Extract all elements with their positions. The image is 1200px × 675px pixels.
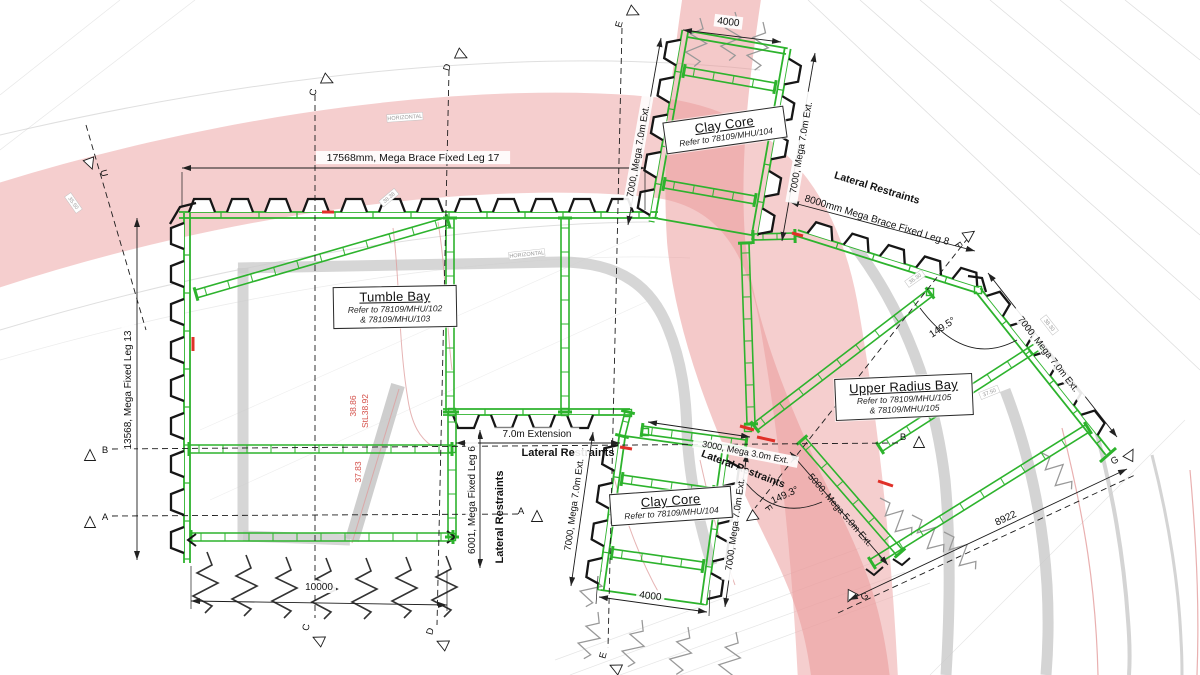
rung	[987, 374, 991, 381]
rung	[614, 477, 620, 478]
castellation	[569, 199, 595, 212]
ride-outline	[612, 470, 660, 595]
bay-label-upper-radius-bay: Upper Radius Bay Refer to 78109/MHU/105 …	[834, 373, 974, 421]
rung	[1000, 478, 1004, 485]
marker-letter: A	[102, 512, 109, 523]
dim-4000-label: 4000	[639, 590, 663, 604]
marker-triangle	[321, 73, 336, 88]
lateral-restraints-label: Lateral Restraints	[522, 447, 615, 459]
survey-line	[0, 0, 195, 150]
break-symbol	[667, 625, 697, 675]
marker-triangle	[627, 5, 642, 20]
marker-triangle	[311, 632, 326, 647]
rung	[651, 427, 652, 435]
section-marker-A: A	[518, 506, 543, 522]
level-38-92: StL38.92	[360, 394, 370, 428]
rung	[909, 266, 911, 272]
dim-6001-label: 6001, Mega Fixed Leg 6	[466, 435, 479, 564]
rung	[320, 254, 322, 262]
marker-triangle	[85, 517, 96, 528]
castellation	[493, 199, 519, 212]
member	[195, 217, 447, 290]
level-38-86: 38.86	[348, 395, 358, 417]
rung	[412, 227, 414, 235]
castellation	[531, 199, 557, 212]
bay-ref-2: & 78109/MHU/103	[339, 313, 451, 325]
break-symbol	[352, 558, 377, 619]
section-marker-B: B	[85, 445, 109, 461]
tag-text: 37.50	[982, 388, 997, 399]
dim-13568-label: 13568, Mega Fixed Leg 13	[123, 330, 134, 449]
break-symbol	[272, 557, 297, 618]
angle-149-5-label: 149.5°	[927, 315, 957, 340]
break-symbol	[432, 556, 457, 617]
castellation	[171, 261, 184, 287]
marker-letter: C	[307, 87, 319, 97]
break-symbol	[193, 552, 218, 613]
rung	[661, 556, 662, 564]
rung	[752, 79, 753, 87]
section-line	[112, 514, 520, 516]
survey-line	[1060, 0, 1200, 115]
bay-label-tumble-bay: Tumble Bay Refer to 78109/MHU/102 & 7810…	[333, 285, 458, 330]
castellation	[567, 415, 593, 428]
castellation	[987, 292, 1010, 317]
dimension-line	[191, 601, 447, 605]
rung	[631, 476, 632, 484]
rung	[389, 234, 391, 242]
castellation	[171, 413, 184, 439]
rung	[621, 550, 622, 558]
marker-letter: D	[424, 626, 436, 636]
marker-letter: E	[597, 651, 609, 660]
marker-triangle	[608, 660, 623, 675]
marker-letter: A	[518, 506, 525, 517]
marker-letter: E	[613, 20, 625, 29]
end-plate	[702, 559, 704, 573]
rung	[603, 552, 609, 553]
break-symbol	[619, 617, 651, 669]
rung	[228, 281, 230, 289]
section-marker-C: C	[300, 622, 325, 646]
survey-line	[930, 420, 1185, 675]
section-marker-E: E	[613, 5, 641, 29]
member	[874, 431, 1090, 566]
survey-line	[920, 0, 1200, 235]
rung	[1073, 410, 1078, 414]
section-marker-E: E	[597, 651, 622, 675]
marker-letter: G	[1109, 454, 1121, 467]
end-plate	[621, 410, 635, 413]
dim-7000-label: 7000, Mega 7.0m Ext.	[560, 448, 588, 561]
marker-letter: B	[102, 445, 108, 456]
marker-triangle	[85, 450, 96, 461]
tag-text: 36.30	[908, 273, 923, 286]
survey-line	[860, 0, 1200, 300]
member	[611, 557, 702, 570]
marker-letter: B	[900, 432, 906, 443]
level-38-86: 38.86	[348, 395, 358, 417]
castellation	[171, 489, 184, 515]
castellation	[784, 59, 800, 85]
break-symbol	[392, 557, 417, 618]
marker-letter: B	[102, 445, 108, 456]
end-castellation	[893, 558, 910, 565]
extension-70m-label: 7.0m Extension	[495, 428, 579, 441]
survey-line	[0, 0, 120, 95]
red-tick	[620, 447, 632, 449]
rung	[960, 503, 964, 510]
marker-triangle	[532, 511, 543, 522]
lateral-restraints-label: Lateral Restraints	[833, 169, 921, 206]
end-plate	[621, 472, 623, 486]
marker-letter: C	[307, 87, 319, 97]
marker-letter: E	[613, 20, 625, 29]
rung	[945, 277, 947, 283]
site-plan-svg: UCDEBAABCDEFFGG17568mm, Mega Brace Fixed…	[0, 0, 1200, 675]
rung	[435, 221, 437, 229]
lateral-restraints-label: Lateral Restraints	[522, 447, 615, 459]
castellation	[417, 199, 443, 212]
marker-letter: C	[300, 622, 312, 632]
marker-triangle	[455, 48, 470, 63]
chord	[976, 292, 1106, 455]
castellation	[171, 223, 184, 249]
dim-13568-label: 13568, Mega Fixed Leg 13	[122, 320, 135, 460]
level-37-83: 37.83	[353, 461, 363, 483]
dim-4000-label: 4000	[636, 588, 666, 604]
castellation	[303, 199, 329, 212]
red-setting-out	[1190, 470, 1198, 675]
rung	[1049, 380, 1054, 384]
survey-line	[1125, 0, 1200, 60]
marker-letter: B	[900, 432, 906, 443]
marker-triangle	[962, 227, 977, 242]
castellation	[455, 199, 481, 212]
rung	[251, 274, 253, 282]
marker-letter: C	[300, 622, 312, 632]
level-38-92: StL38.92	[360, 394, 370, 428]
rung	[1002, 321, 1007, 325]
castellation	[453, 415, 479, 428]
castellation	[171, 299, 184, 325]
rung	[777, 89, 783, 90]
marker-letter: A	[518, 506, 525, 517]
rung	[681, 559, 682, 567]
rung	[671, 430, 672, 438]
lateral-restraints-label: Lateral Restraints	[833, 169, 921, 206]
section-marker-A: A	[85, 512, 109, 528]
rung	[875, 330, 880, 336]
break-symbol	[936, 526, 984, 576]
angle-149-5-label: 149.5°	[927, 315, 957, 340]
marker-letter: E	[597, 651, 609, 660]
castellation	[491, 415, 517, 428]
castellation	[880, 245, 905, 264]
marker-letter: G	[1109, 454, 1121, 467]
road-band	[1152, 455, 1182, 675]
section-marker-D: D	[441, 48, 469, 72]
rung	[980, 491, 984, 498]
member	[753, 239, 795, 240]
level-37-83: 37.83	[353, 461, 363, 483]
member	[613, 549, 704, 562]
rung	[1007, 361, 1011, 368]
section-marker-B: B	[900, 432, 925, 448]
castellation	[529, 415, 555, 428]
marker-triangle	[914, 437, 925, 448]
lateral-restraints-label: Lateral Restraints	[494, 471, 506, 564]
break-symbol	[232, 555, 257, 616]
dim-10000-label: 10000	[305, 582, 333, 593]
member	[623, 475, 714, 488]
survey-tag: 38.30	[1040, 315, 1058, 335]
red-setting-out	[1062, 428, 1098, 675]
rung	[671, 482, 672, 490]
rung	[886, 439, 890, 446]
castellation	[227, 199, 253, 212]
scaffold-site-plan: UCDEBAABCDEFFGG17568mm, Mega Brace Fixed…	[0, 0, 1200, 675]
rung	[706, 566, 712, 567]
rung	[623, 421, 629, 422]
marker-letter: D	[424, 626, 436, 636]
section-marker-F: F	[952, 227, 978, 251]
dim-6001-label: 6001, Mega Fixed Leg 6	[467, 446, 478, 554]
marker-letter: D	[441, 62, 453, 72]
castellation	[265, 199, 291, 212]
castellation	[341, 199, 367, 212]
section-marker-D: D	[424, 626, 449, 650]
dim-10000-label: 10000	[302, 581, 336, 594]
marker-triangle	[1123, 447, 1138, 462]
rung	[651, 479, 652, 487]
rung	[872, 254, 874, 260]
marker-triangle	[435, 636, 450, 651]
survey-line	[990, 0, 1200, 175]
castellation	[171, 337, 184, 363]
marker-letter: D	[441, 62, 453, 72]
castellation	[189, 199, 215, 212]
castellation	[171, 375, 184, 401]
extension-70m-label: 7.0m Extension	[503, 429, 572, 440]
dim-17568-label: 17568mm, Mega Brace Fixed Leg 17	[327, 152, 500, 164]
dim-17568-label: 17568mm, Mega Brace Fixed Leg 17	[316, 151, 510, 164]
rung	[204, 287, 206, 295]
end-plate	[611, 546, 613, 560]
rung	[906, 426, 910, 433]
lateral-restraints-label: Lateral Restraints	[494, 471, 506, 564]
castellation	[171, 527, 184, 553]
rung	[343, 247, 345, 255]
marker-letter: A	[102, 512, 109, 523]
castellation	[171, 451, 184, 477]
rung	[711, 529, 717, 530]
